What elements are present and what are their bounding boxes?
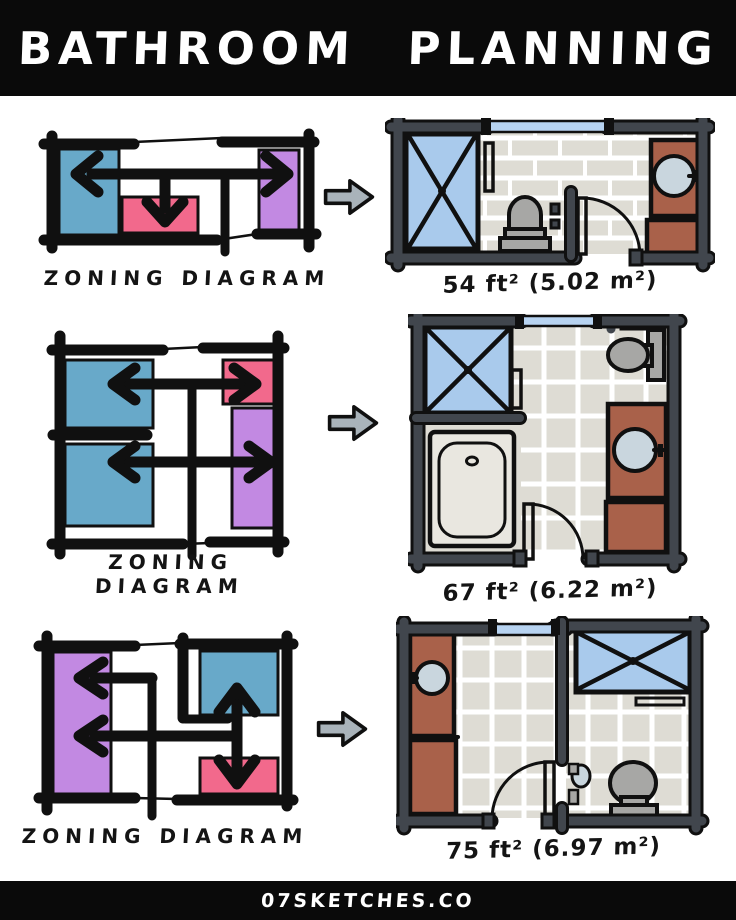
floor-plan-1-graphic bbox=[385, 118, 715, 273]
bathtub bbox=[423, 424, 521, 554]
vanity-sink bbox=[647, 140, 701, 254]
zoning-label-3: ZONING DIAGRAM bbox=[14, 824, 315, 848]
site-credit: 07SKETCHES.CO bbox=[260, 890, 475, 912]
flow-arrow-icon bbox=[315, 706, 369, 752]
floor-plan-2-graphic bbox=[408, 314, 693, 574]
window bbox=[488, 619, 560, 635]
zoning-label-2: ZONING DIAGRAM bbox=[29, 550, 312, 598]
window bbox=[515, 314, 602, 329]
flow-arrow-icon bbox=[326, 400, 380, 446]
zoning-diagram-2-graphic bbox=[35, 322, 305, 572]
toilet bbox=[610, 762, 657, 817]
poster: BATHROOM PLANNING bbox=[0, 0, 736, 920]
shower bbox=[406, 134, 478, 249]
footer-bar: 07SKETCHES.CO bbox=[0, 881, 736, 920]
zoning-label-1: ZONING DIAGRAM bbox=[21, 266, 352, 290]
vanity-sink bbox=[407, 634, 458, 814]
flow-arrow-icon bbox=[322, 174, 376, 220]
shower bbox=[576, 630, 690, 692]
vanity-sink bbox=[606, 404, 667, 552]
window bbox=[481, 118, 614, 135]
zoning-diagram-3-graphic bbox=[15, 618, 315, 828]
floor-plan-3-graphic bbox=[396, 616, 711, 841]
zoning-diagram-1-graphic bbox=[22, 112, 352, 277]
header-bar: BATHROOM PLANNING bbox=[0, 0, 736, 96]
shower bbox=[425, 327, 511, 413]
area-label-2: 67 ft² (6.22 m²) bbox=[390, 574, 711, 608]
poster-title: BATHROOM PLANNING bbox=[17, 22, 720, 75]
